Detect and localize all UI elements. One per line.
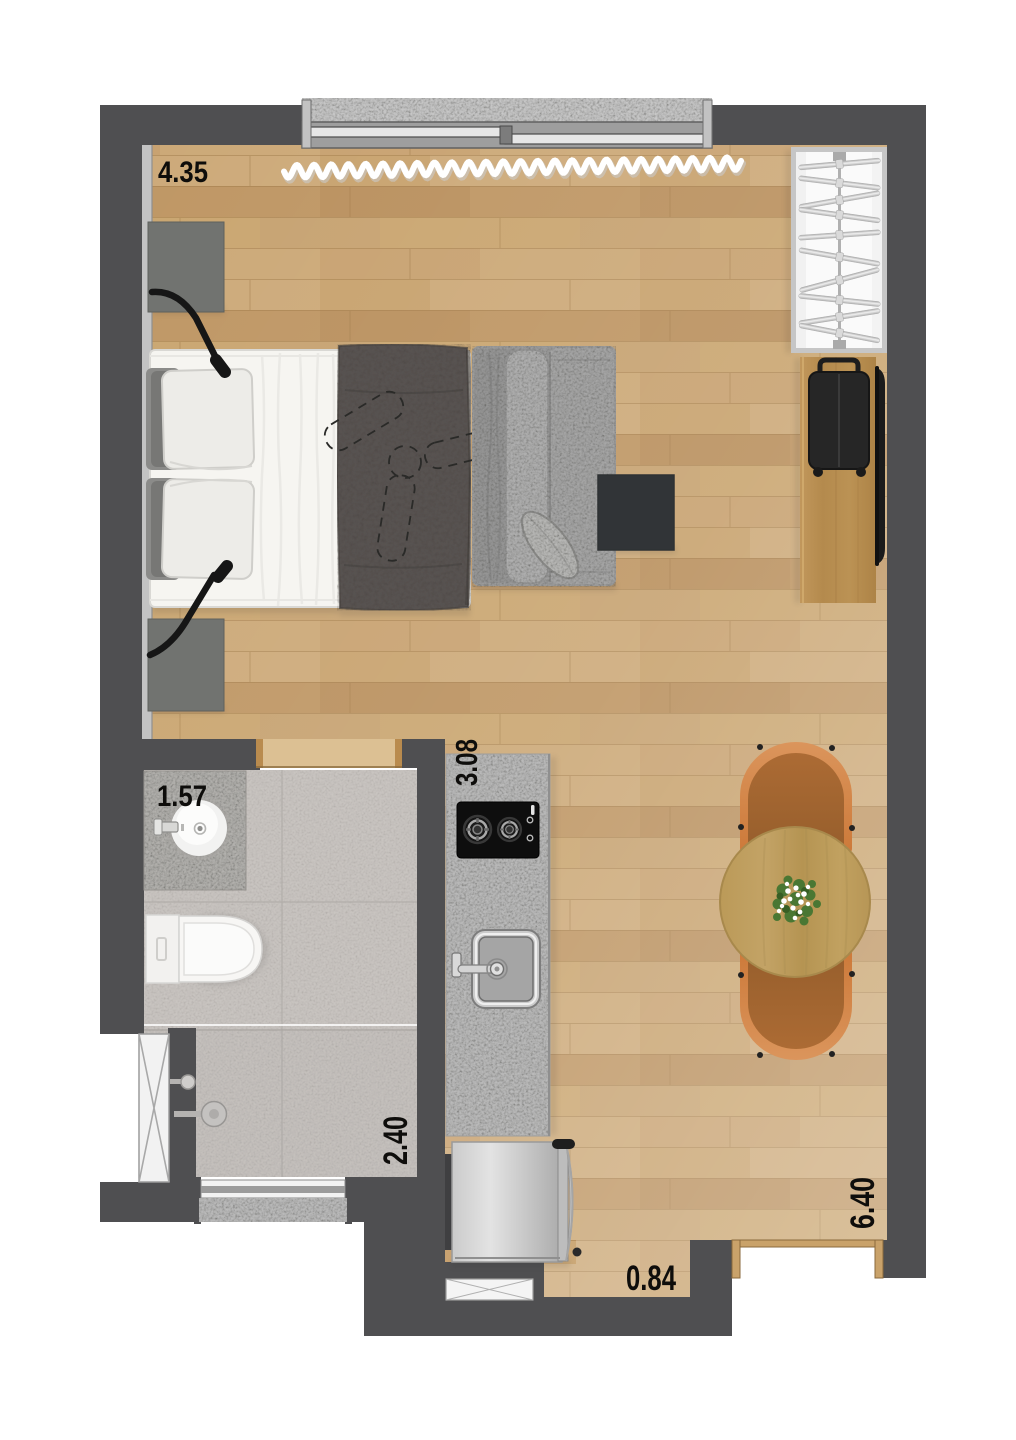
svg-text:0.84: 0.84 [626, 1259, 676, 1298]
svg-text:3.08: 3.08 [449, 739, 484, 786]
svg-text:1.57: 1.57 [157, 780, 207, 813]
svg-text:2.40: 2.40 [377, 1116, 415, 1165]
svg-text:6.40: 6.40 [844, 1177, 882, 1229]
svg-text:4.35: 4.35 [158, 156, 208, 189]
